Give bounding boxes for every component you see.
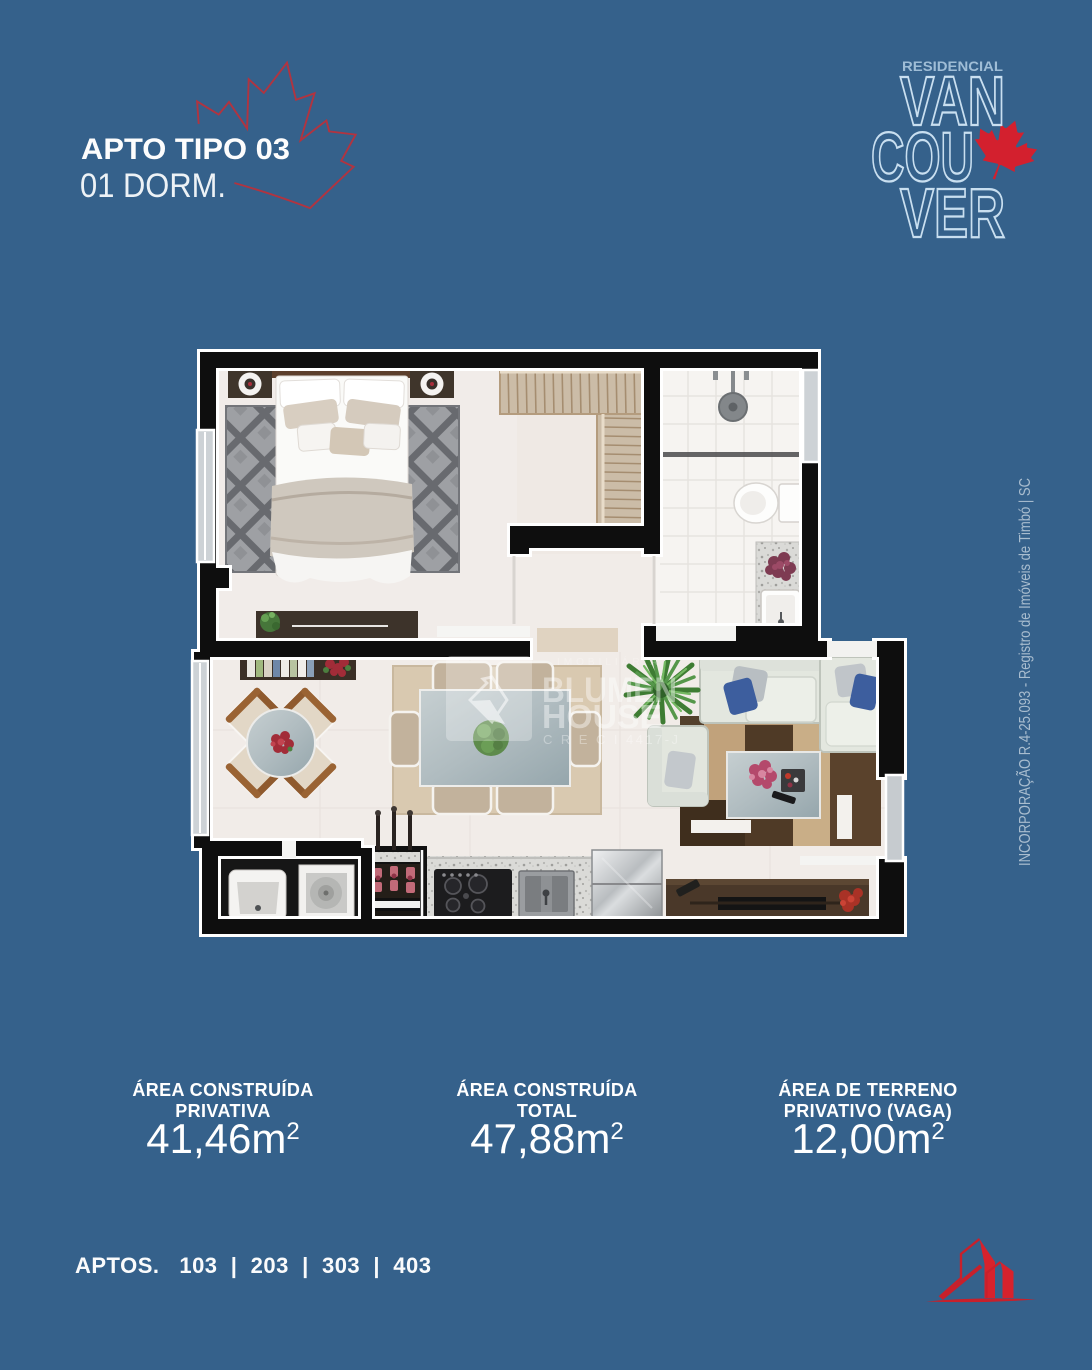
svg-text:47,88m2: 47,88m2	[470, 1115, 623, 1162]
svg-text:INCORPORAÇÃO R.4-25.093 - Regi: INCORPORAÇÃO R.4-25.093 - Registro de Im…	[1014, 478, 1034, 866]
svg-text:ÁREA DE TERRENO: ÁREA DE TERRENO	[778, 1079, 957, 1100]
svg-text:IMOBILIÁRIA: IMOBILIÁRIA	[557, 655, 661, 668]
svg-text:APTO TIPO 03: APTO TIPO 03	[81, 133, 290, 166]
svg-text:ÁREA CONSTRUÍDA: ÁREA CONSTRUÍDA	[132, 1079, 313, 1100]
svg-text:VER: VER	[900, 174, 1005, 252]
svg-text:ÁREA CONSTRUÍDA: ÁREA CONSTRUÍDA	[456, 1079, 637, 1100]
svg-text:HOUSE: HOUSE	[542, 698, 662, 735]
svg-text:01 DORM.: 01 DORM.	[80, 167, 226, 205]
svg-text:12,00m2: 12,00m2	[791, 1115, 944, 1162]
svg-text:41,46m2: 41,46m2	[146, 1115, 299, 1162]
svg-text:APTOS. 103 | 203 | 303: APTOS. 103 | 203 | 303 | 403	[75, 1253, 431, 1278]
svg-text:C R E C I 4417-J: C R E C I 4417-J	[543, 732, 678, 747]
